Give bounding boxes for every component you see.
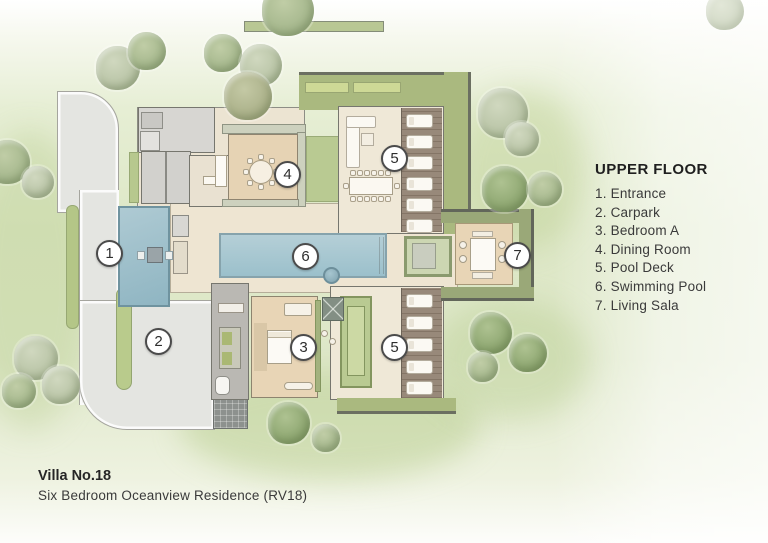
sun-lounger bbox=[406, 294, 433, 308]
entry-console bbox=[215, 155, 227, 187]
legend-title: UPPER FLOOR bbox=[595, 161, 708, 178]
legend-item-entrance: 1. Entrance bbox=[595, 185, 708, 204]
sala-wall-bottom bbox=[441, 287, 534, 301]
pergola-square bbox=[322, 297, 344, 321]
tree-icon bbox=[482, 166, 528, 212]
pond-sculpture bbox=[147, 247, 163, 263]
tree-icon bbox=[706, 0, 744, 30]
tree-icon bbox=[204, 34, 242, 72]
dining-table-long bbox=[349, 177, 393, 195]
tree-icon bbox=[22, 166, 54, 198]
wardrobe-accent bbox=[222, 352, 232, 365]
sun-lounger bbox=[406, 135, 433, 149]
dining-deck-bottom bbox=[222, 199, 299, 207]
planter-steps-inner bbox=[347, 306, 365, 376]
tree-icon bbox=[470, 312, 512, 354]
plan-footer: Villa No.18 Six Bedroom Oceanview Reside… bbox=[38, 468, 307, 503]
bed-pillow bbox=[268, 332, 291, 338]
entry-stairs bbox=[173, 241, 188, 274]
tree-icon bbox=[128, 32, 166, 70]
sun-lounger bbox=[406, 381, 433, 395]
bedroom-bench bbox=[284, 382, 313, 390]
legend-item-living-sala: 7. Living Sala bbox=[595, 297, 708, 316]
legend-item-bedroom-a: 3. Bedroom A bbox=[595, 222, 708, 241]
pool-steps bbox=[379, 237, 386, 274]
legend: UPPER FLOOR 1. Entrance 2. Carpark 3. Be… bbox=[595, 161, 708, 315]
daybed-mat bbox=[412, 243, 436, 269]
sun-lounger bbox=[406, 177, 433, 191]
sun-lounger bbox=[406, 316, 433, 330]
pond-step bbox=[137, 251, 145, 260]
hedge-strip-west bbox=[66, 205, 79, 329]
planter-west bbox=[129, 152, 139, 203]
stairs-north bbox=[141, 112, 163, 129]
villa-subtitle: Six Bedroom Oceanview Residence (RV18) bbox=[38, 488, 307, 503]
planter-strip bbox=[305, 82, 349, 93]
powder-room bbox=[172, 215, 189, 237]
floor-plan-page: 1 2 3 4 5 5 6 7 UPPER FLOOR 1. Entrance … bbox=[0, 0, 768, 543]
legend-item-pool-deck: 5. Pool Deck bbox=[595, 259, 708, 278]
marker-pool-deck-north: 5 bbox=[381, 145, 408, 172]
marker-pool-deck-south: 5 bbox=[381, 334, 408, 361]
planter-strip bbox=[353, 82, 401, 93]
marker-entrance: 1 bbox=[96, 240, 123, 267]
sala-cushion bbox=[472, 231, 493, 237]
wardrobe-accent bbox=[222, 332, 232, 345]
sofa bbox=[346, 116, 376, 128]
gray-room-divider bbox=[165, 152, 167, 203]
sun-lounger bbox=[406, 198, 433, 212]
tree-icon bbox=[268, 402, 310, 444]
bedroom-sofa bbox=[284, 303, 312, 316]
carpark-slab bbox=[79, 300, 215, 430]
sun-lounger bbox=[406, 156, 433, 170]
marker-carpark: 2 bbox=[145, 328, 172, 355]
sala-daybed bbox=[470, 238, 496, 271]
sun-lounger bbox=[406, 360, 433, 374]
bathtub bbox=[215, 376, 230, 395]
pond-step bbox=[165, 251, 173, 260]
tree-icon bbox=[509, 334, 547, 372]
legend-item-carpark: 2. Carpark bbox=[595, 204, 708, 223]
villa-title: Villa No.18 bbox=[38, 468, 307, 484]
marker-bedroom-a: 3 bbox=[290, 334, 317, 361]
sun-lounger bbox=[406, 338, 433, 352]
hedge-south bbox=[337, 398, 456, 414]
marker-living-sala: 7 bbox=[504, 242, 531, 269]
sun-lounger bbox=[406, 219, 433, 233]
tree-icon bbox=[42, 366, 80, 404]
dining-deck-top bbox=[222, 124, 306, 134]
tree-icon bbox=[312, 424, 340, 452]
bedroom-headboard-wall bbox=[254, 323, 267, 371]
coffee-table bbox=[361, 133, 374, 146]
sun-lounger bbox=[406, 114, 433, 128]
marker-swimming-pool: 6 bbox=[292, 243, 319, 270]
marker-dining-room: 4 bbox=[274, 161, 301, 188]
spa-circle bbox=[323, 267, 340, 284]
bath-north bbox=[140, 131, 160, 151]
tree-icon bbox=[224, 72, 272, 120]
legend-item-dining-room: 4. Dining Room bbox=[595, 241, 708, 260]
legend-item-swimming-pool: 6. Swimming Pool bbox=[595, 278, 708, 297]
sala-cushion bbox=[472, 272, 493, 279]
tree-icon bbox=[505, 122, 539, 156]
tree-icon bbox=[468, 352, 498, 382]
console bbox=[218, 303, 244, 313]
tree-icon bbox=[2, 374, 36, 408]
tree-icon bbox=[528, 172, 562, 206]
paved-path-dark bbox=[213, 398, 248, 429]
